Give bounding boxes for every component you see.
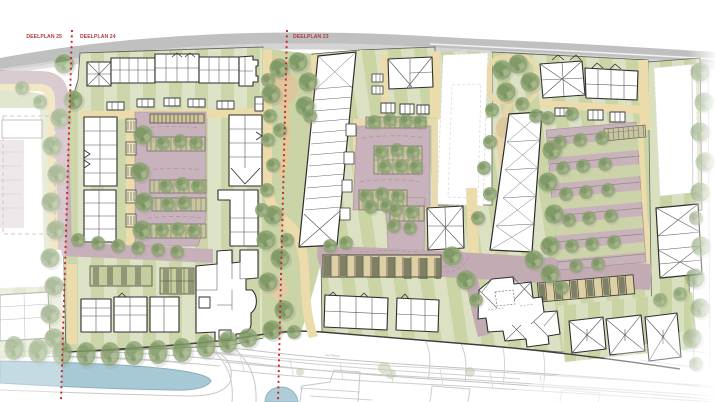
svg-text:Hoofdweg: Hoofdweg <box>325 353 340 358</box>
svg-text:DEELPLAN 25: DEELPLAN 25 <box>26 34 62 40</box>
svg-text:DEELPLAN 24: DEELPLAN 24 <box>80 34 116 40</box>
svg-text:DEELPLAN 23: DEELPLAN 23 <box>293 34 329 40</box>
